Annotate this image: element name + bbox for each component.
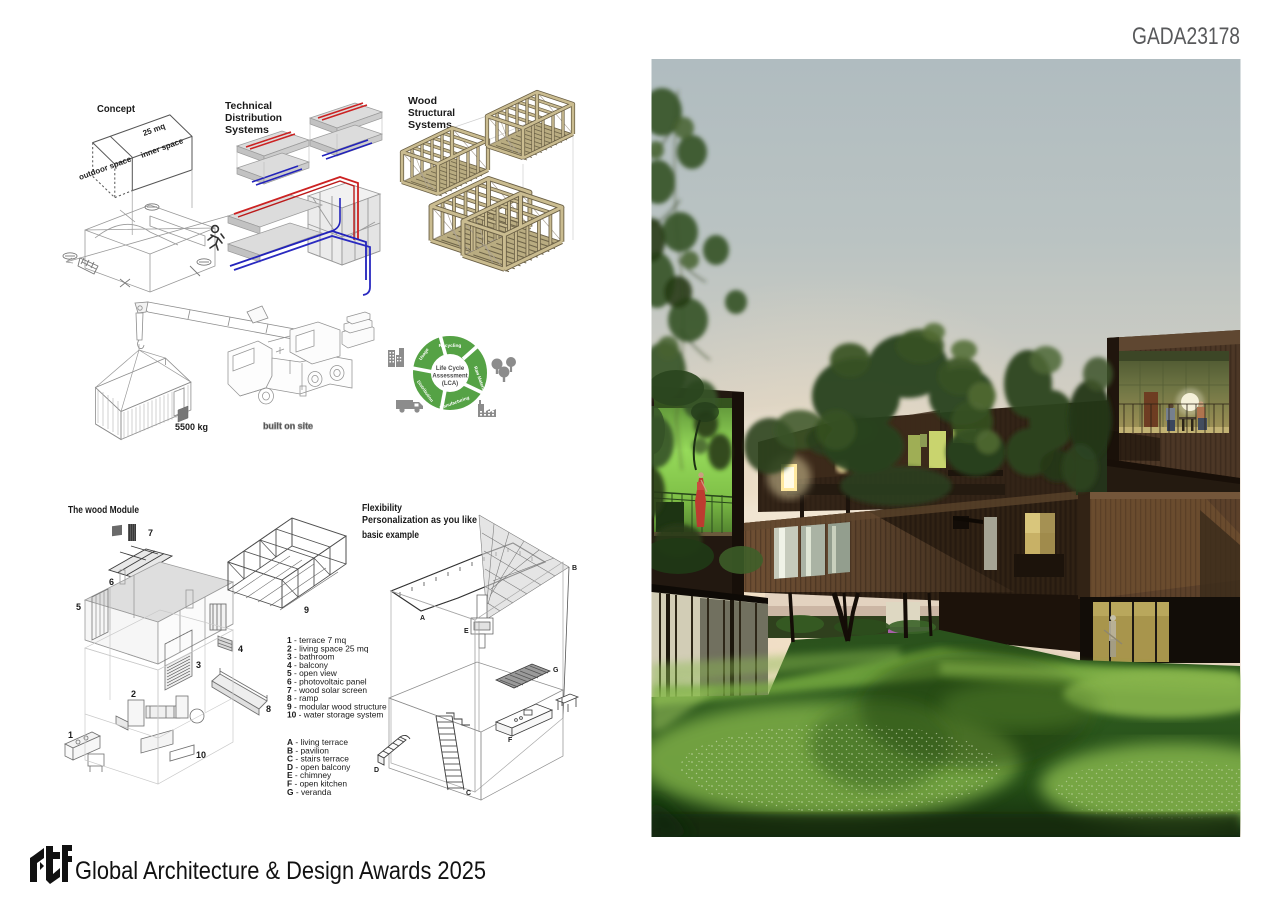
svg-text:9: 9 bbox=[304, 605, 309, 615]
svg-text:The wood Module: The wood Module bbox=[68, 505, 139, 516]
svg-text:D: D bbox=[374, 767, 379, 774]
svg-text:Technical: Technical bbox=[225, 101, 272, 112]
svg-text:A: A bbox=[420, 615, 425, 622]
svg-text:outdoor space: outdoor space bbox=[78, 154, 133, 181]
svg-text:2: 2 bbox=[131, 689, 136, 699]
svg-text:10 - water storage system: 10 - water storage system bbox=[287, 710, 383, 720]
svg-text:5500 kg: 5500 kg bbox=[175, 422, 208, 432]
svg-text:Personalization as you like: Personalization as you like bbox=[362, 515, 477, 526]
svg-text:Distribution: Distribution bbox=[225, 113, 282, 124]
svg-text:5: 5 bbox=[76, 602, 81, 612]
svg-text:B: B bbox=[572, 565, 577, 572]
svg-text:Structural: Structural bbox=[408, 108, 455, 119]
svg-text:Life Cycle: Life Cycle bbox=[436, 366, 465, 372]
svg-text:GADA23178: GADA23178 bbox=[1132, 23, 1240, 50]
svg-text:7: 7 bbox=[148, 528, 153, 538]
svg-text:inner space: inner space bbox=[140, 136, 185, 160]
svg-text:10: 10 bbox=[196, 750, 206, 760]
svg-text:G - veranda: G - veranda bbox=[287, 787, 332, 797]
svg-text:Global Architecture & Design A: Global Architecture & Design Awards 2025 bbox=[75, 857, 486, 885]
svg-text:E: E bbox=[464, 628, 469, 635]
svg-text:G: G bbox=[553, 667, 559, 674]
svg-text:Flexibility: Flexibility bbox=[362, 503, 402, 514]
svg-text:4: 4 bbox=[238, 644, 243, 654]
svg-text:C: C bbox=[466, 790, 471, 797]
svg-text:1: 1 bbox=[68, 730, 73, 740]
svg-text:built on site: built on site bbox=[263, 421, 313, 431]
svg-text:Wood: Wood bbox=[408, 96, 437, 107]
svg-text:8: 8 bbox=[266, 704, 271, 714]
svg-text:(LCA): (LCA) bbox=[442, 381, 458, 387]
svg-text:Recycling: Recycling bbox=[439, 343, 462, 349]
svg-text:Concept: Concept bbox=[97, 104, 136, 115]
svg-text:Systems: Systems bbox=[225, 125, 269, 136]
svg-text:3: 3 bbox=[196, 660, 201, 670]
svg-text:F: F bbox=[508, 737, 513, 744]
svg-text:basic example: basic example bbox=[362, 530, 419, 541]
svg-text:Assessment: Assessment bbox=[432, 374, 467, 380]
